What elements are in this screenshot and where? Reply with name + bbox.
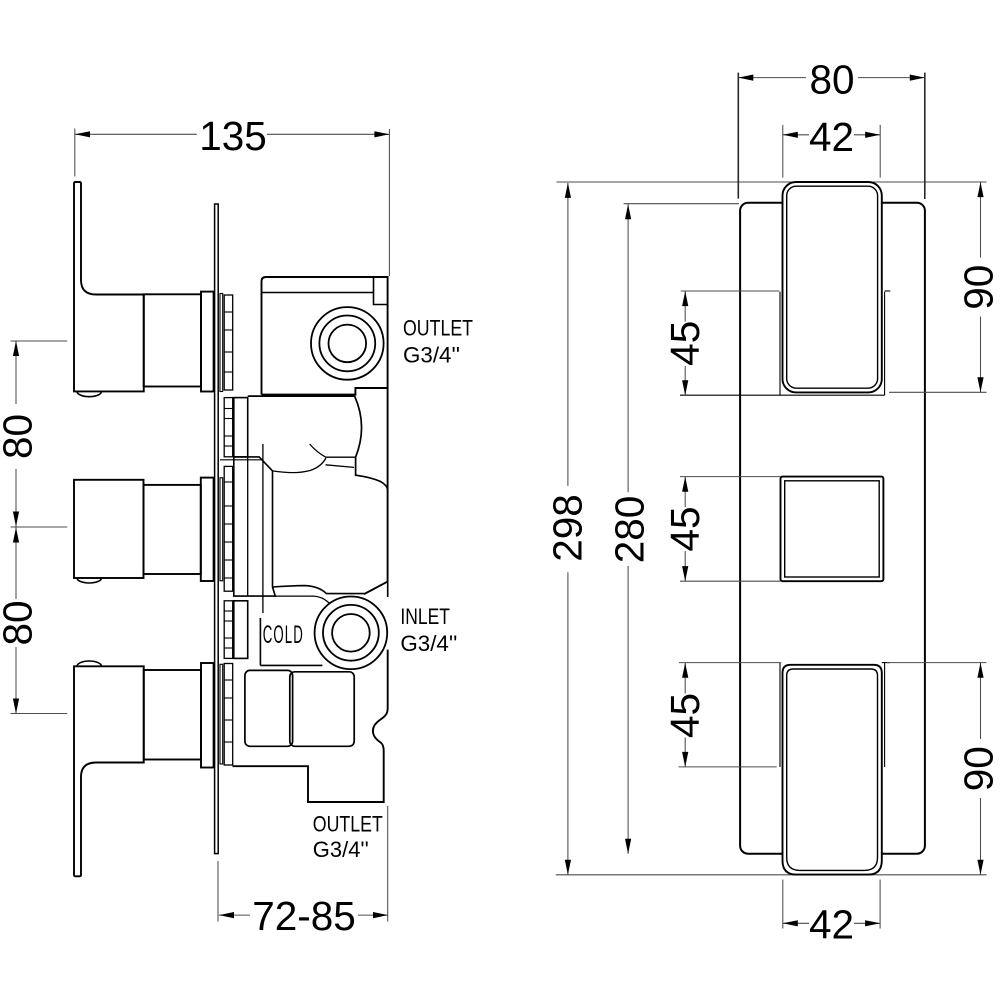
svg-text:G3/4'': G3/4'' [403,343,460,368]
svg-text:72-85: 72-85 [252,893,356,939]
svg-text:80: 80 [809,56,854,102]
svg-text:80: 80 [0,600,41,645]
svg-text:135: 135 [199,113,267,159]
svg-text:G3/4'': G3/4'' [400,631,457,656]
svg-text:45: 45 [662,506,708,551]
svg-text:42: 42 [809,114,854,160]
svg-text:OUTLET: OUTLET [403,315,473,340]
svg-text:OUTLET: OUTLET [313,812,383,837]
svg-text:45: 45 [662,693,708,738]
svg-text:INLET: INLET [400,604,450,629]
svg-text:90: 90 [956,746,1000,791]
svg-text:42: 42 [809,902,854,948]
svg-text:298: 298 [545,494,591,562]
svg-text:COLD: COLD [263,622,304,649]
svg-text:G3/4'': G3/4'' [313,837,369,862]
svg-text:90: 90 [956,265,1000,310]
svg-text:45: 45 [662,321,708,366]
svg-text:80: 80 [0,414,41,459]
svg-text:280: 280 [607,496,653,564]
